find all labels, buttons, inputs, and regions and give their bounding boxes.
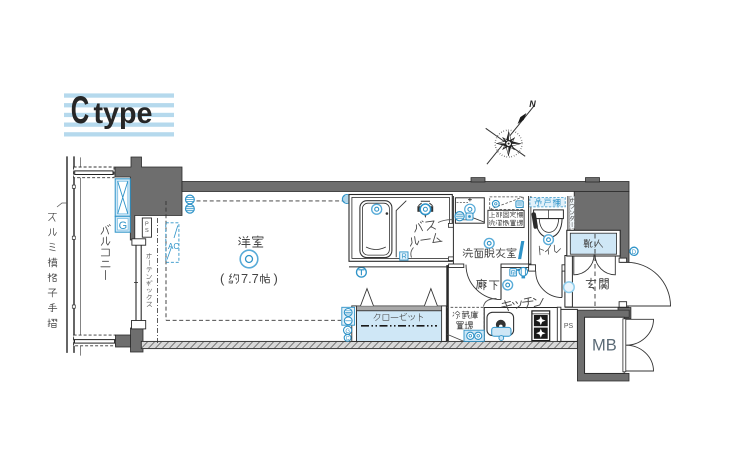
svg-text:): )	[274, 271, 278, 286]
svg-text:(: (	[220, 271, 225, 286]
svg-text:P: P	[145, 222, 149, 228]
svg-text:G: G	[119, 220, 128, 232]
svg-text:7.7: 7.7	[241, 271, 259, 286]
svg-text:MB: MB	[592, 337, 617, 355]
svg-text:R: R	[402, 254, 407, 261]
svg-text:N: N	[529, 99, 536, 109]
svg-text:C: C	[71, 89, 90, 132]
svg-text:PS: PS	[564, 323, 574, 330]
svg-text:C: C	[346, 336, 350, 342]
svg-text:type: type	[94, 97, 153, 130]
svg-text:AC: AC	[168, 242, 179, 251]
svg-text:S: S	[145, 228, 149, 234]
svg-text:D: D	[632, 250, 637, 256]
